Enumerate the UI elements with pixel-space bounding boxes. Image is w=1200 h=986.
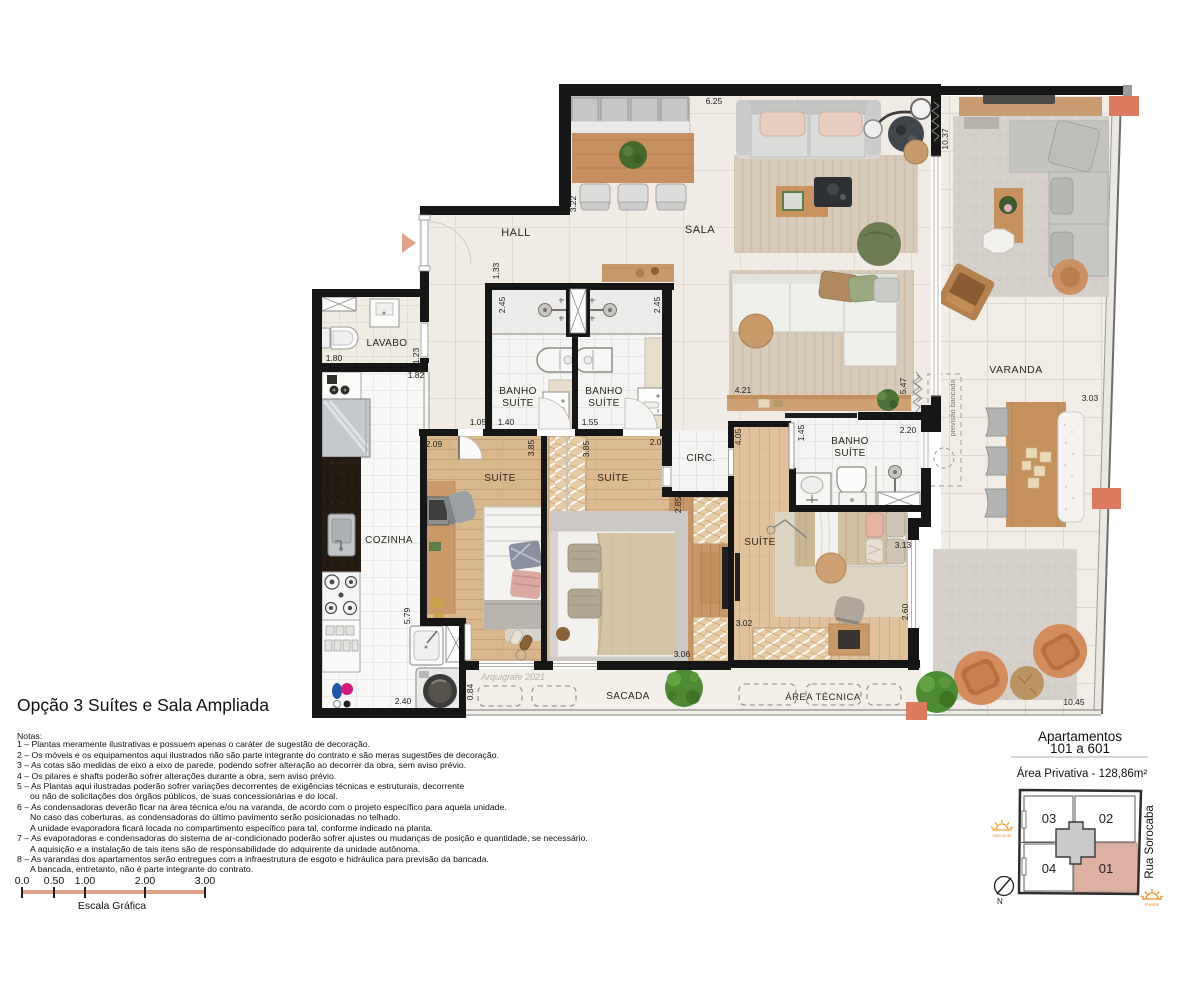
svg-text:LAVABO: LAVABO (367, 338, 408, 349)
svg-text:3.85: 3.85 (581, 440, 591, 457)
svg-text:1.40: 1.40 (498, 417, 515, 427)
svg-text:0.50: 0.50 (44, 875, 65, 887)
svg-text:2.09: 2.09 (426, 439, 443, 449)
svg-text:SUÍTE: SUÍTE (502, 396, 533, 409)
svg-text:1.00: 1.00 (75, 875, 96, 887)
svg-text:SUÍTE: SUÍTE (834, 446, 865, 459)
svg-text:2.00: 2.00 (135, 875, 156, 887)
svg-text:A aquisição e a instalação de: A aquisição e a instalação de tais itens… (30, 844, 420, 854)
svg-text:ou não de solicitações dos órg: ou não de solicitações dos órgãos públic… (30, 791, 338, 801)
svg-text:A bancada, entretanto, não é p: A bancada, entretanto, não é parte integ… (30, 864, 253, 874)
svg-text:8 – As varandas dos apartament: 8 – As varandas dos apartamentos serão e… (17, 854, 489, 864)
svg-text:03: 03 (1042, 811, 1056, 826)
svg-text:4.05: 4.05 (733, 428, 743, 445)
svg-text:3.85: 3.85 (526, 439, 536, 456)
svg-text:4.21: 4.21 (735, 385, 752, 395)
svg-text:3.13: 3.13 (895, 540, 912, 550)
svg-text:SUÍTE: SUÍTE (588, 396, 619, 409)
svg-text:SUÍTE: SUÍTE (744, 535, 775, 548)
svg-text:3.06: 3.06 (674, 649, 691, 659)
svg-text:2.40: 2.40 (395, 696, 412, 706)
svg-text:No caso das coberturas, as con: No caso das coberturas, as condensadoras… (30, 812, 400, 822)
svg-text:ÁREA TÉCNICA: ÁREA TÉCNICA (785, 692, 861, 703)
svg-text:1.05: 1.05 (470, 417, 487, 427)
svg-text:previsão bancada: previsão bancada (948, 380, 957, 437)
svg-text:COZINHA: COZINHA (365, 535, 413, 546)
svg-text:Escala Gráfica: Escala Gráfica (78, 900, 146, 912)
svg-text:2.45: 2.45 (652, 296, 662, 313)
svg-text:SUÍTE: SUÍTE (484, 471, 515, 484)
svg-text:01: 01 (1099, 861, 1113, 876)
svg-text:3.03: 3.03 (1082, 393, 1099, 403)
svg-text:BANHO: BANHO (585, 386, 623, 397)
svg-text:N: N (997, 897, 1003, 906)
svg-text:Arquigrafe 2021: Arquigrafe 2021 (480, 672, 545, 682)
svg-text:3.11: 3.11 (419, 462, 429, 478)
svg-text:2.06: 2.06 (650, 437, 667, 447)
svg-text:3.02: 3.02 (736, 618, 753, 628)
svg-text:10.37: 10.37 (940, 128, 950, 150)
svg-text:Rua Sorocaba: Rua Sorocaba (1144, 805, 1156, 879)
svg-text:0.84: 0.84 (465, 683, 475, 700)
svg-text:CIRC.: CIRC. (686, 453, 715, 464)
svg-text:1.45: 1.45 (796, 424, 806, 441)
svg-text:101 a 601: 101 a 601 (1050, 741, 1110, 756)
svg-text:Nascente: Nascente (992, 833, 1012, 838)
svg-text:SACADA: SACADA (606, 691, 650, 702)
svg-text:5.47: 5.47 (898, 377, 908, 394)
svg-text:A unidade evaporadora ficará l: A unidade evaporadora ficará locada no c… (30, 823, 433, 833)
svg-text:1.23: 1.23 (411, 347, 421, 364)
svg-text:BANHO: BANHO (831, 436, 869, 447)
svg-text:4 – Os pilares e shafts poderã: 4 – Os pilares e shafts poderão sofrer a… (17, 771, 336, 781)
svg-text:0.0: 0.0 (15, 875, 30, 887)
svg-text:1 – Plantas meramente ilustrat: 1 – Plantas meramente ilustrativas e pos… (17, 739, 370, 749)
svg-text:7 – As evaporadoras e condensa: 7 – As evaporadoras e condensadoras do s… (17, 833, 588, 843)
svg-text:10.45: 10.45 (1063, 697, 1085, 707)
svg-text:HALL: HALL (501, 227, 531, 239)
svg-text:3.22: 3.22 (568, 195, 578, 212)
svg-text:5 – As Plantas aqui ilustradas: 5 – As Plantas aqui ilustradas poderão s… (17, 781, 464, 791)
svg-text:02: 02 (1099, 811, 1113, 826)
svg-text:6 – As condensadoras deverão f: 6 – As condensadoras deverão ficar na ár… (17, 802, 507, 812)
svg-text:SALA: SALA (685, 224, 715, 236)
svg-text:1.82: 1.82 (408, 370, 425, 380)
svg-text:2.45: 2.45 (497, 296, 507, 313)
svg-text:SUÍTE: SUÍTE (597, 471, 628, 484)
svg-text:BANHO: BANHO (499, 386, 537, 397)
svg-text:1.33: 1.33 (491, 262, 501, 279)
svg-text:3.00: 3.00 (195, 875, 216, 887)
svg-text:5.79: 5.79 (402, 607, 412, 624)
svg-text:2 – Os móveis e os equipamento: 2 – Os móveis e os equipamentos aqui ilu… (17, 750, 499, 760)
svg-text:1.80: 1.80 (326, 353, 343, 363)
svg-text:2.60: 2.60 (900, 603, 910, 620)
svg-text:3 – As cotas são medidas de ei: 3 – As cotas são medidas de eixo a eixo … (17, 760, 466, 770)
svg-text:VARANDA: VARANDA (989, 364, 1042, 376)
svg-text:2.20: 2.20 (900, 425, 917, 435)
svg-text:Área Privativa - 128,86m²: Área Privativa - 128,86m² (1017, 767, 1148, 780)
svg-text:Opção 3 Suítes e Sala Ampliada: Opção 3 Suítes e Sala Ampliada (17, 695, 269, 715)
svg-text:1.55: 1.55 (582, 417, 599, 427)
svg-text:04: 04 (1042, 861, 1056, 876)
svg-text:2.85: 2.85 (673, 496, 683, 513)
svg-text:Poente: Poente (1145, 902, 1160, 907)
svg-text:6.25: 6.25 (706, 96, 723, 106)
